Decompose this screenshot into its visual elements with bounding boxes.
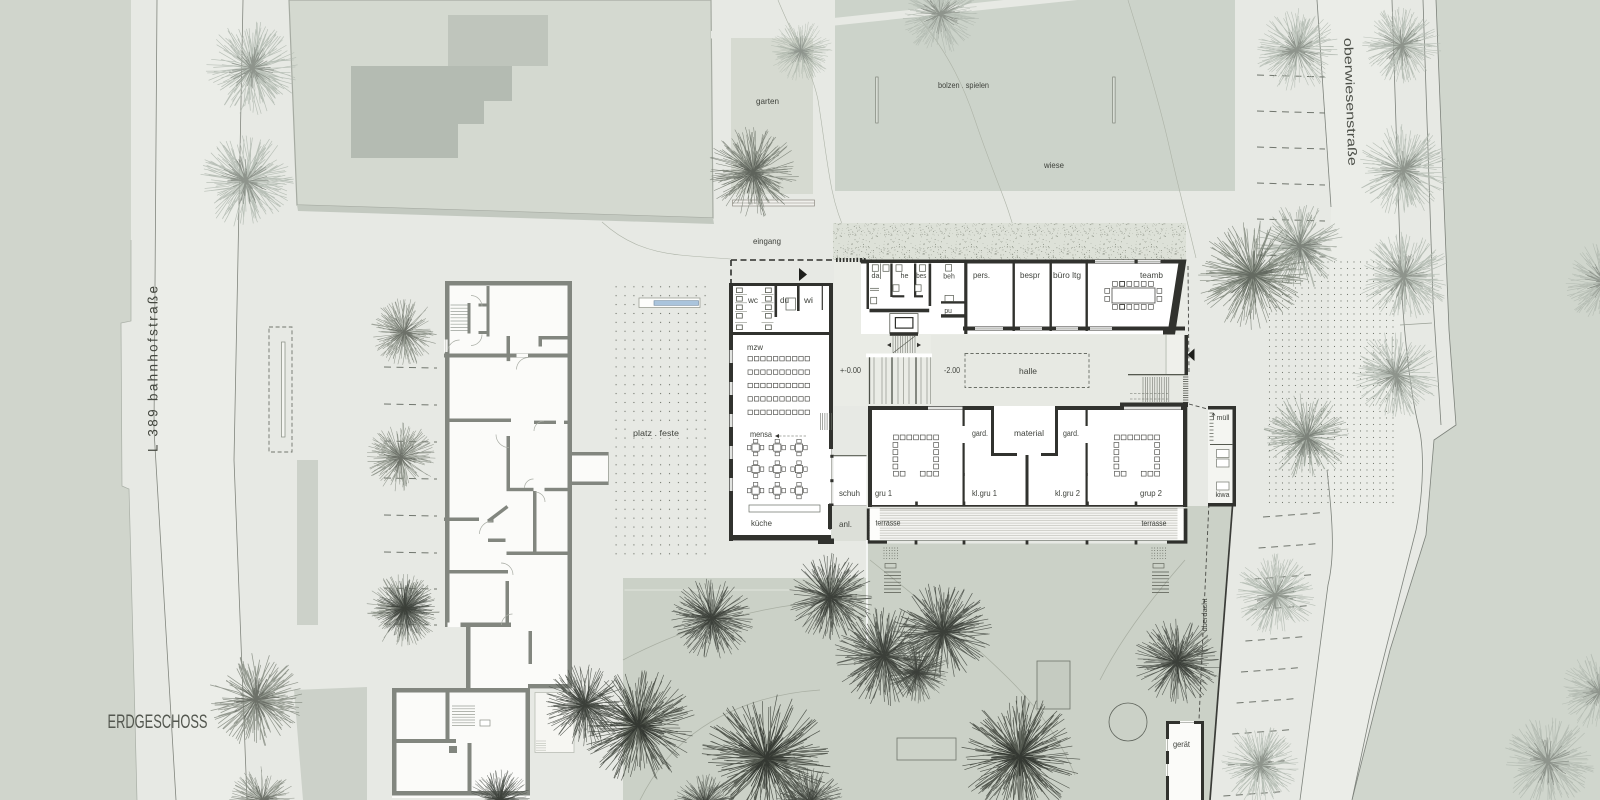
- svg-text:du: du: [780, 296, 789, 305]
- svg-text:überdacht: überdacht: [1200, 598, 1209, 632]
- svg-text:mzw: mzw: [747, 342, 764, 352]
- svg-text:kl.gru 2: kl.gru 2: [1055, 488, 1080, 498]
- svg-text:wi: wi: [803, 296, 813, 305]
- svg-text:+-0.00: +-0.00: [840, 365, 861, 375]
- svg-text:platz . feste: platz . feste: [633, 429, 680, 438]
- svg-text:bolzen . spielen: bolzen . spielen: [938, 80, 989, 90]
- svg-text:beh: beh: [943, 272, 955, 281]
- svg-text:pers.: pers.: [973, 270, 990, 280]
- svg-text:kl.gru 1: kl.gru 1: [972, 488, 997, 498]
- svg-text:terrasse: terrasse: [1142, 519, 1167, 528]
- svg-text:garten: garten: [756, 96, 779, 106]
- svg-text:küche: küche: [751, 518, 772, 528]
- svg-text:schuh: schuh: [839, 488, 860, 498]
- svg-text:gerät: gerät: [1173, 739, 1191, 749]
- svg-text:gard.: gard.: [972, 429, 988, 438]
- svg-text:wiese: wiese: [1043, 160, 1064, 170]
- svg-text:gard.: gard.: [1063, 429, 1079, 438]
- svg-text:L 389 bahnhofstraße: L 389 bahnhofstraße: [146, 286, 161, 452]
- svg-text:pu: pu: [944, 306, 952, 315]
- svg-text:teamb: teamb: [1140, 270, 1163, 280]
- svg-text:grup 2: grup 2: [1140, 488, 1162, 498]
- svg-text:da: da: [872, 271, 881, 280]
- svg-text:halle: halle: [1019, 366, 1037, 376]
- svg-text:bespr: bespr: [1020, 270, 1040, 280]
- svg-text:kiwa: kiwa: [1216, 490, 1231, 499]
- svg-text:-2.00: -2.00: [944, 365, 960, 375]
- svg-text:wc: wc: [747, 296, 758, 305]
- svg-text:he: he: [901, 271, 909, 280]
- svg-text:mensa: mensa: [750, 429, 772, 439]
- svg-text:material: material: [1014, 428, 1044, 438]
- svg-text:müll: müll: [1217, 413, 1230, 422]
- svg-text:anl.: anl.: [839, 519, 852, 529]
- svg-text:terrasse: terrasse: [876, 519, 901, 528]
- svg-text:büro ltg: büro ltg: [1053, 270, 1081, 280]
- svg-text:gru 1: gru 1: [875, 488, 892, 498]
- svg-text:eingang: eingang: [753, 236, 781, 246]
- svg-text:ERDGESCHOSS: ERDGESCHOSS: [108, 712, 208, 733]
- svg-text:bes: bes: [916, 271, 926, 280]
